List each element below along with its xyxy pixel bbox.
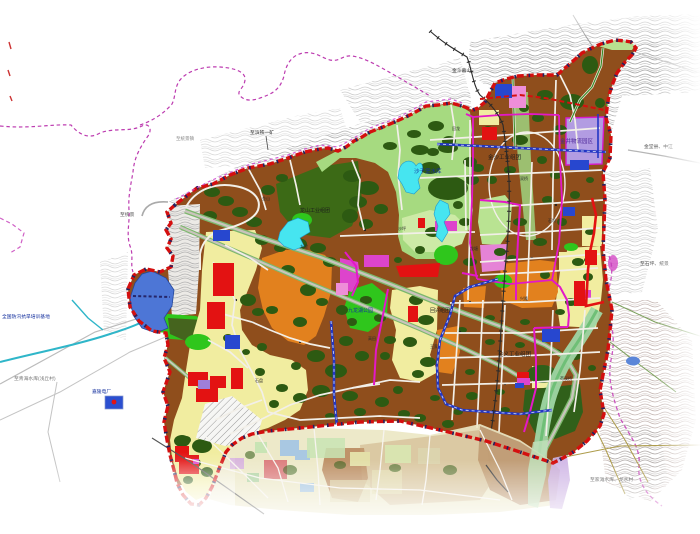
svg-text:至青海水库(浅丘村): 至青海水库(浅丘村)	[14, 375, 56, 382]
svg-text:金井物流园区: 金井物流园区	[560, 137, 594, 145]
svg-text:兴隆: 兴隆	[520, 295, 528, 301]
svg-text:金沙工业组团: 金沙工业组团	[488, 153, 522, 161]
svg-text:九龙湖公园: 九龙湖公园	[348, 307, 373, 314]
svg-text:金山: 金山	[262, 195, 270, 201]
svg-text:至统景: 至统景	[120, 211, 135, 218]
svg-text:龙塘: 龙塘	[470, 245, 478, 251]
svg-text:石坝: 石坝	[548, 217, 556, 223]
svg-text:苟溪桥: 苟溪桥	[560, 375, 572, 381]
svg-text:高田: 高田	[368, 335, 376, 341]
svg-text:至滨铁一矿: 至滨铁一矿	[250, 129, 274, 136]
svg-text:全国防汛抗旱培训基地: 全国防汛抗旱培训基地	[2, 313, 50, 320]
svg-text:沙子堡水库: 沙子堡水库	[414, 167, 442, 175]
svg-text:嘉陵电厂: 嘉陵电厂	[92, 388, 111, 395]
svg-text:双桥: 双桥	[520, 175, 528, 181]
svg-text:石盘: 石盘	[255, 377, 263, 383]
svg-text:王家: 王家	[430, 343, 438, 349]
svg-text:金斗暮山: 金斗暮山	[452, 67, 471, 74]
svg-text:沙坪: 沙坪	[398, 225, 406, 231]
svg-text:九里: 九里	[300, 243, 308, 249]
svg-text:回兴组团: 回兴组团	[430, 307, 450, 314]
svg-text:回龙: 回龙	[452, 125, 460, 131]
svg-text:至统景镇: 至统景镇	[176, 135, 194, 142]
svg-text:龙山工业组团: 龙山工业组团	[300, 207, 330, 214]
svg-text:金义工业组团: 金义工业组团	[498, 350, 532, 358]
